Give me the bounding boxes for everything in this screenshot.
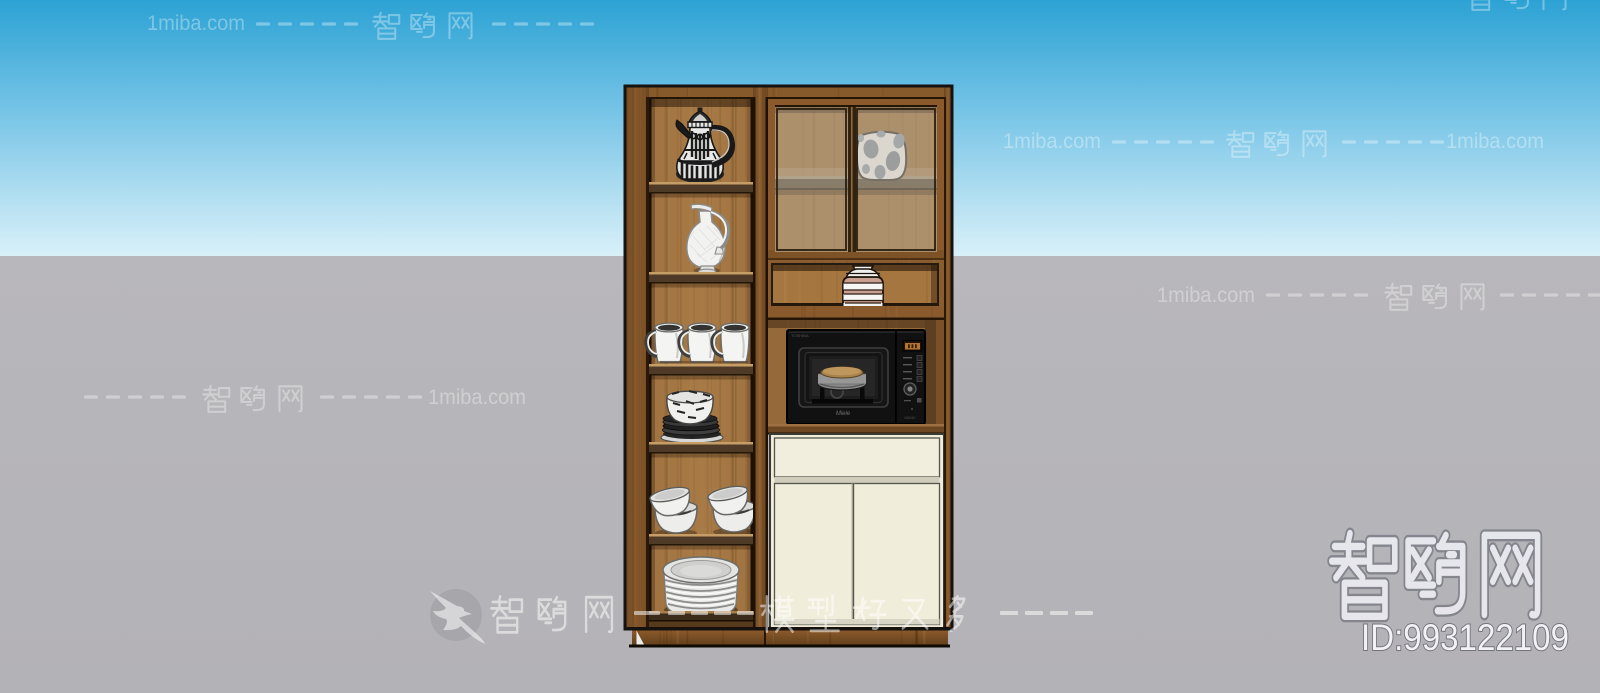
svg-text:M6040: M6040	[905, 416, 916, 420]
svg-text:1miba.com: 1miba.com	[1003, 129, 1101, 153]
svg-text:1miba.com: 1miba.com	[1446, 129, 1544, 153]
svg-text:ID:993122109: ID:993122109	[1361, 617, 1569, 658]
svg-text:TOSHIBA: TOSHIBA	[791, 333, 809, 338]
svg-text:Miele: Miele	[836, 411, 851, 417]
svg-text:1miba.com: 1miba.com	[1157, 283, 1255, 307]
svg-text:1miba.com: 1miba.com	[428, 385, 526, 409]
svg-text:1miba.com: 1miba.com	[147, 11, 245, 35]
